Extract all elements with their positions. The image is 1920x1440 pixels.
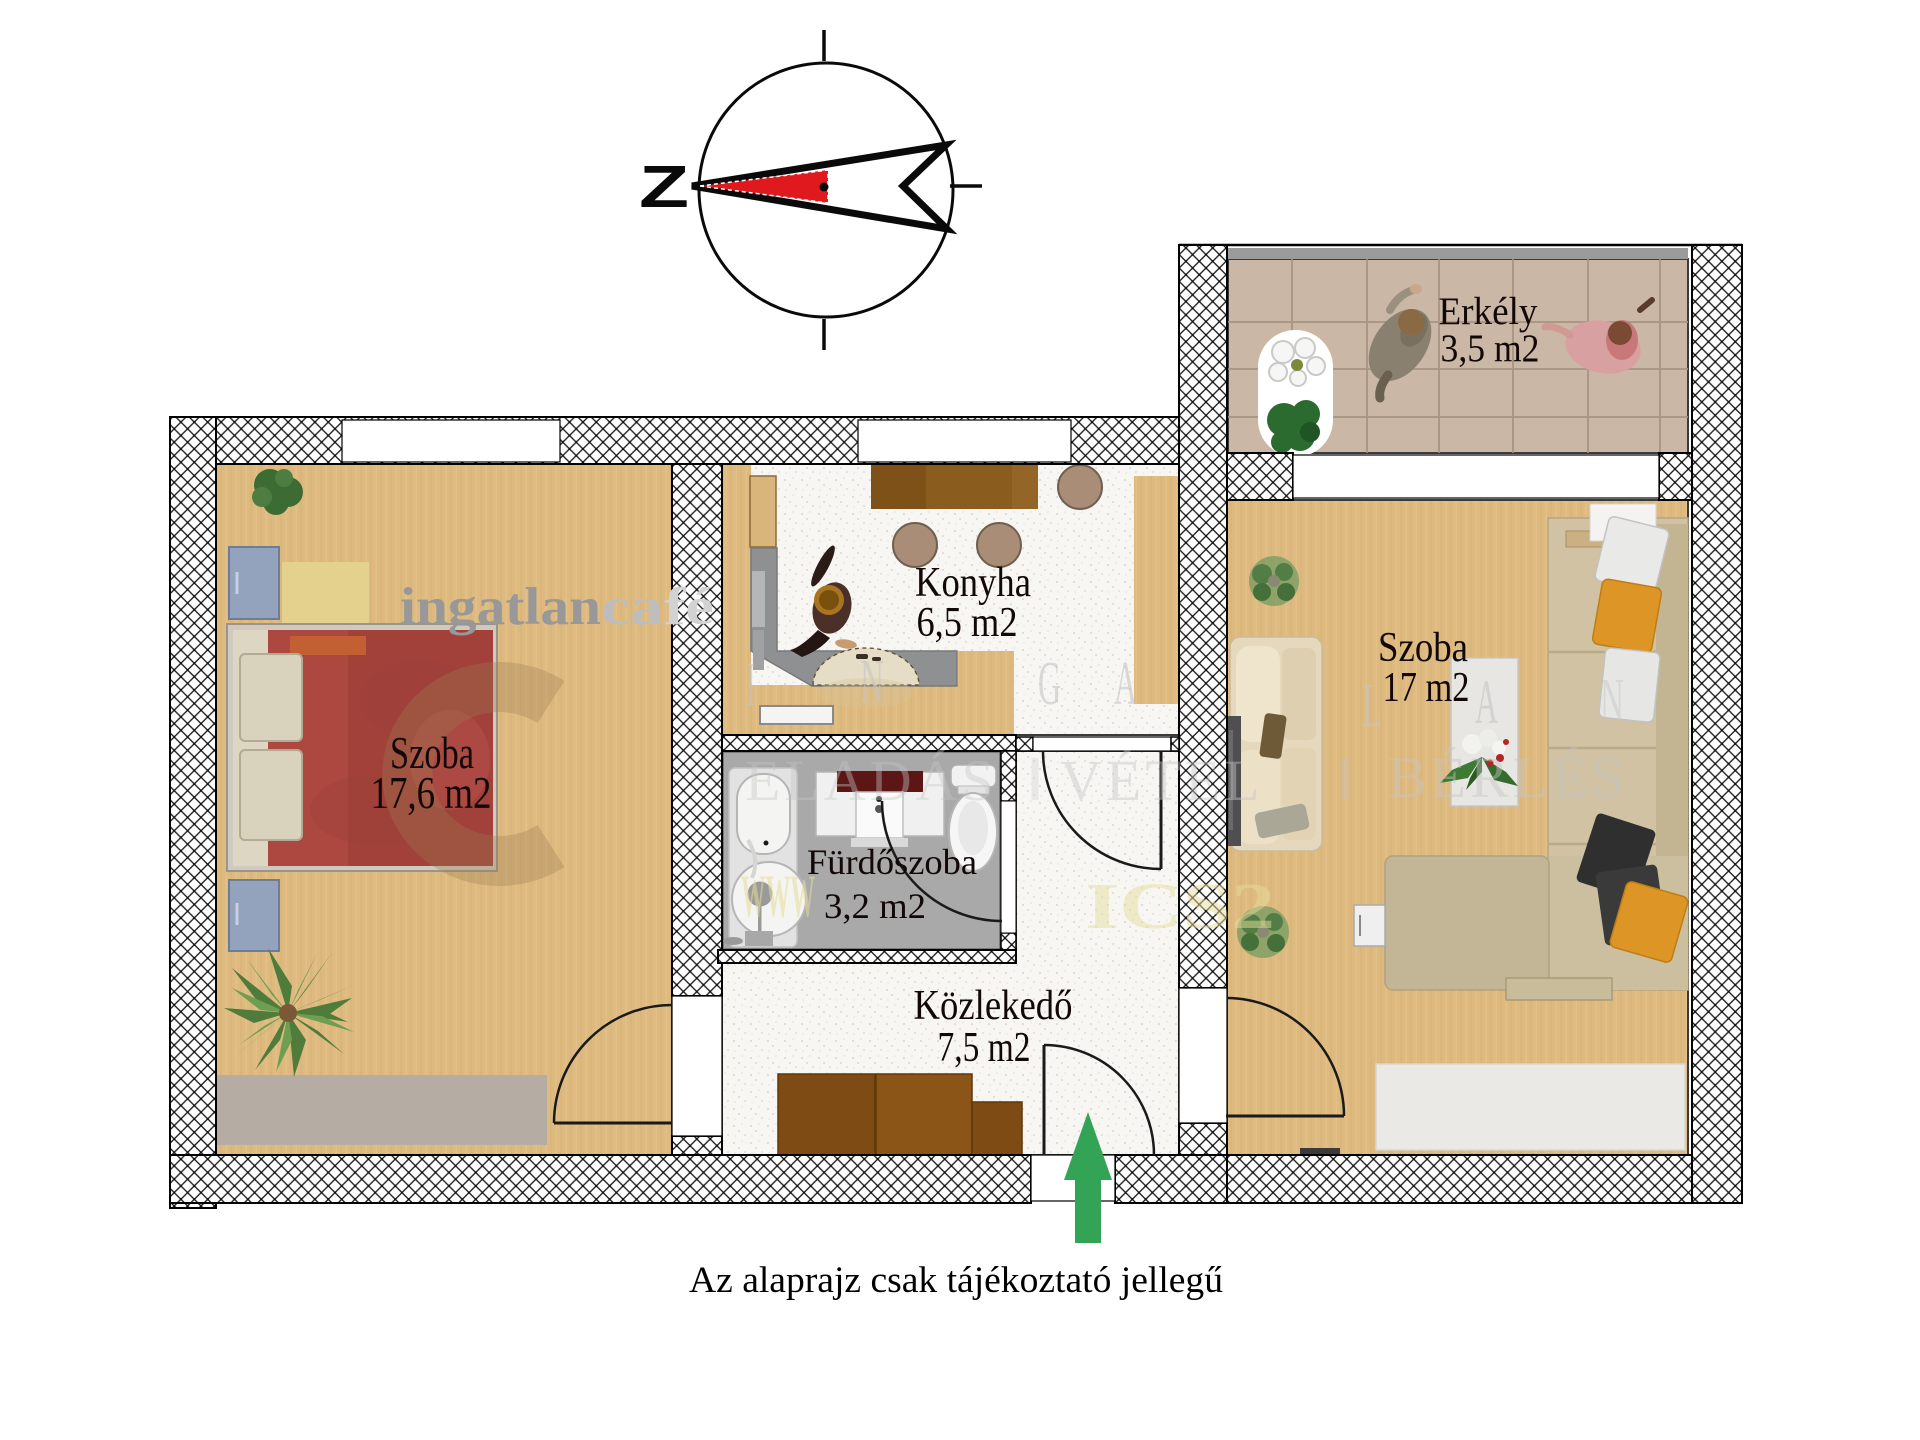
svg-text:Z: Z: [639, 154, 689, 220]
svg-text:N: N: [860, 648, 884, 716]
svg-text:ca: ca: [601, 578, 663, 636]
svg-text:ELADÁS: ELADÁS: [745, 748, 998, 813]
svg-text:ICS2: ICS2: [1085, 870, 1275, 943]
svg-text:17 m2: 17 m2: [1383, 665, 1470, 711]
svg-text:6,5 m2: 6,5 m2: [917, 600, 1018, 646]
svg-text:N: N: [1600, 667, 1624, 735]
svg-text:3,2 m2: 3,2 m2: [824, 886, 926, 926]
svg-text:7,5 m2: 7,5 m2: [938, 1025, 1031, 1071]
svg-text:WWW: WWW: [741, 863, 815, 929]
svg-text:3,5 m2: 3,5 m2: [1441, 327, 1540, 370]
svg-text:Fürdőszoba: Fürdőszoba: [807, 842, 977, 882]
svg-text:G: G: [1038, 650, 1061, 718]
svg-text:VÉTEL: VÉTEL: [1060, 748, 1264, 813]
svg-text:17,6 m2: 17,6 m2: [371, 768, 492, 818]
svg-text:BÉRLÉS: BÉRLÉS: [1388, 745, 1628, 810]
svg-text:ingatlan: ingatlan: [400, 578, 601, 636]
svg-text:Közlekedő: Közlekedő: [914, 983, 1073, 1029]
svg-text:fé: fé: [664, 578, 714, 636]
svg-text:A: A: [1475, 669, 1498, 737]
svg-text:I: I: [747, 651, 755, 719]
svg-text:L: L: [1362, 672, 1382, 740]
svg-text:A: A: [1114, 650, 1137, 718]
svg-text:Az alaprajz csak tájékoztató j: Az alaprajz csak tájékoztató jellegű: [689, 1260, 1223, 1301]
